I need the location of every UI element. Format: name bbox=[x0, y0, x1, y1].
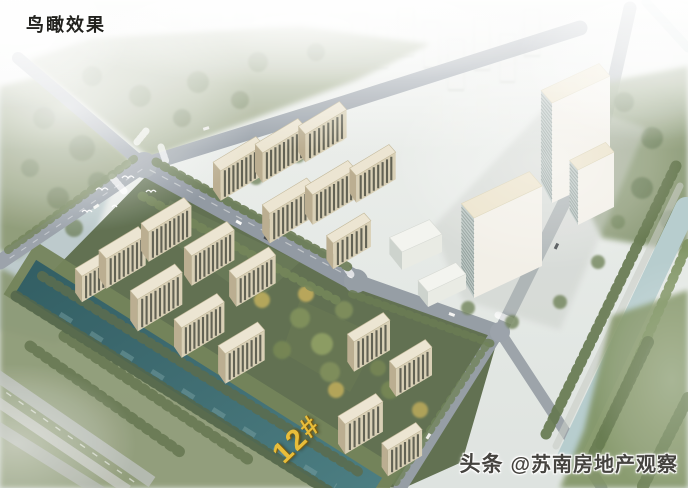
stage: 鸟瞰效果 12# 头条@苏南房地产观察 bbox=[0, 0, 688, 488]
haze-overlay bbox=[0, 0, 688, 488]
toutiao-logo: 头条 bbox=[459, 453, 503, 476]
watermark-account: @苏南房地产观察 bbox=[510, 454, 678, 476]
aerial-render bbox=[0, 0, 688, 488]
watermark: 头条@苏南房地产观察 bbox=[459, 448, 678, 478]
birdseye-title-label: 鸟瞰效果 bbox=[26, 11, 106, 37]
